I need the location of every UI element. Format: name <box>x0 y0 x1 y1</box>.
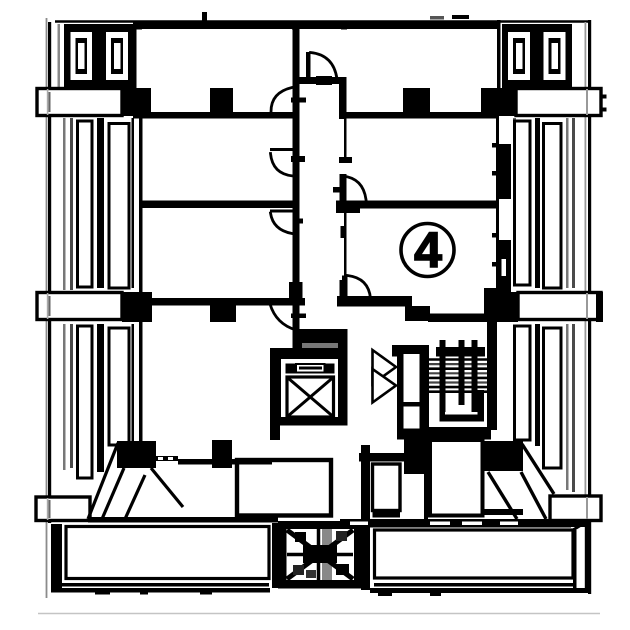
svg-text:4: 4 <box>414 222 442 278</box>
